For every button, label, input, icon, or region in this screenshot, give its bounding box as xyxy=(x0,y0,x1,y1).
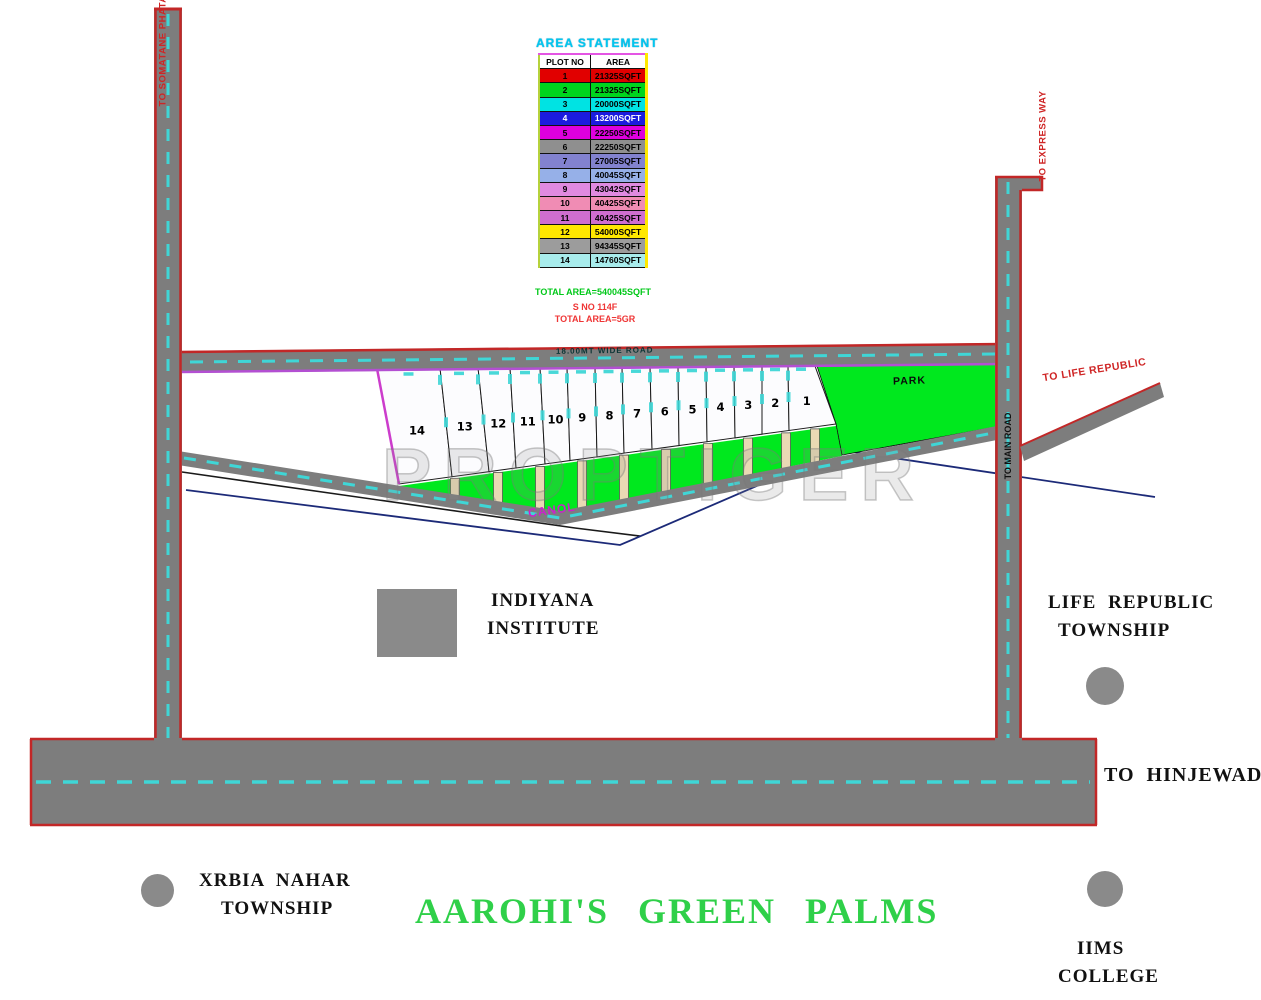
indiyana-label-2: INSTITUTE xyxy=(487,618,600,640)
boundary-dimension-mark xyxy=(620,373,624,383)
plot-no-cell: 1 xyxy=(539,69,591,83)
plot-number-label: 7 xyxy=(633,406,641,420)
plot-no-cell: 3 xyxy=(539,97,591,111)
indiyana-block xyxy=(377,589,457,657)
xrbia-marker xyxy=(141,874,174,907)
area-cell: 40045SQFT xyxy=(591,168,647,182)
road-label-somatane: TO SOMATANE PHATA xyxy=(158,7,169,107)
road-label-expressway: TO EXPRESS WAY xyxy=(1038,92,1049,182)
boundary-dimension-mark xyxy=(594,406,598,416)
boundary-dimension-mark xyxy=(787,392,791,402)
dimension-mark xyxy=(770,368,780,372)
area-row-plot-12: 1254000SQFT xyxy=(539,225,647,239)
plot-no-cell: 7 xyxy=(539,154,591,168)
area-row-plot-13: 1394345SQFT xyxy=(539,239,647,253)
boundary-dimension-mark xyxy=(621,404,625,414)
area-row-plot-5: 522250SQFT xyxy=(539,125,647,139)
dimension-mark xyxy=(715,368,725,372)
area-row-plot-10: 1040425SQFT xyxy=(539,196,647,210)
boundary-dimension-mark xyxy=(476,374,480,384)
boundary-dimension-mark xyxy=(444,417,448,427)
boundary-dimension-mark xyxy=(567,408,571,418)
boundary-dimension-mark xyxy=(760,371,764,381)
area-row-plot-8: 840045SQFT xyxy=(539,168,647,182)
life-republic-road-edge xyxy=(1020,383,1160,446)
area-cell: 21325SQFT xyxy=(591,83,647,97)
area-cell: 43042SQFT xyxy=(591,182,647,196)
plot-number-label: 4 xyxy=(716,400,724,414)
plot-number-label: 5 xyxy=(688,402,696,416)
plot-no-cell: 8 xyxy=(539,168,591,182)
table-col-area: AREA xyxy=(591,54,647,69)
area-row-plot-11: 1140425SQFT xyxy=(539,211,647,225)
plot-number-label: 3 xyxy=(744,398,752,412)
area-row-plot-7: 727005SQFT xyxy=(539,154,647,168)
driveway-strip-5 xyxy=(662,449,671,492)
area-cell: 13200SQFT xyxy=(591,111,647,125)
plot-number-label: 11 xyxy=(520,414,536,428)
area-cell: 20000SQFT xyxy=(591,97,647,111)
area-cell: 40425SQFT xyxy=(591,196,647,210)
dimension-mark xyxy=(659,369,669,373)
boundary-dimension-mark xyxy=(508,374,512,384)
dimension-mark xyxy=(576,370,586,374)
survey-no-line: S NO 114F xyxy=(530,302,660,312)
boundary-dimension-mark xyxy=(649,402,653,412)
plot-no-cell: 11 xyxy=(539,211,591,225)
total-area-line: TOTAL AREA=540045SQFT xyxy=(528,287,658,297)
plot-no-cell: 4 xyxy=(539,111,591,125)
plot-no-cell: 5 xyxy=(539,125,591,139)
boundary-dimension-mark xyxy=(541,410,545,420)
life-republic-label-2: TOWNSHIP xyxy=(1058,620,1170,642)
dimension-mark xyxy=(520,371,530,375)
boundary-dimension-mark xyxy=(732,371,736,381)
iims-label-1: IIMS xyxy=(1077,938,1124,960)
area-row-plot-14: 1414760SQFT xyxy=(539,253,647,267)
dimension-mark xyxy=(796,367,806,371)
plot-no-cell: 14 xyxy=(539,253,591,267)
table-header-row: PLOT NOAREA xyxy=(539,54,647,69)
boundary-dimension-mark xyxy=(482,415,486,425)
area-statement-table: PLOT NOAREA 121325SQFT221325SQFT320000SQ… xyxy=(538,53,648,268)
boundary-dimension-mark xyxy=(538,374,542,384)
area-cell: 22250SQFT xyxy=(591,140,647,154)
boundary-dimension-mark xyxy=(733,396,737,406)
area-row-plot-6: 622250SQFT xyxy=(539,140,647,154)
area-row-plot-3: 320000SQFT xyxy=(539,97,647,111)
site-plan-page: 1413121110987654321 xyxy=(0,0,1261,1000)
iims-label-2: COLLEGE xyxy=(1058,966,1159,988)
area-cell: 21325SQFT xyxy=(591,69,647,83)
boundary-dimension-mark xyxy=(786,371,790,381)
xrbia-label-2: TOWNSHIP xyxy=(221,898,333,920)
dimension-mark xyxy=(549,370,559,374)
life-republic-road xyxy=(1020,383,1164,461)
iims-marker xyxy=(1087,871,1123,907)
dimension-mark xyxy=(631,369,641,373)
life-republic-label-1: LIFE REPUBLIC xyxy=(1048,592,1214,614)
driveway-strip-6 xyxy=(704,444,713,485)
dimension-mark xyxy=(404,372,414,376)
park-label: PARK xyxy=(893,374,926,387)
indiyana-label-1: INDIYANA xyxy=(491,590,594,612)
dimension-mark xyxy=(489,371,499,375)
area-row-plot-2: 221325SQFT xyxy=(539,83,647,97)
boundary-dimension-mark xyxy=(704,372,708,382)
project-title: AAROHI'S GREEN PALMS xyxy=(415,890,938,932)
boundary-dimension-mark xyxy=(760,394,764,404)
dimension-mark xyxy=(687,369,697,373)
road-label-main-road: TO MAIN ROAD xyxy=(1003,401,1013,491)
plot-number-label: 10 xyxy=(547,412,563,426)
area-cell: 14760SQFT xyxy=(591,253,647,267)
driveway-strip-0 xyxy=(451,478,460,496)
dimension-mark xyxy=(454,372,464,376)
hinjewadi-label: TO HINJEWADI xyxy=(1104,764,1261,787)
life-republic-marker xyxy=(1086,667,1124,705)
plot-number-label: 12 xyxy=(490,417,506,431)
plot-no-cell: 10 xyxy=(539,196,591,210)
boundary-dimension-mark xyxy=(511,412,515,422)
driveway-strip-9 xyxy=(811,429,820,463)
plot-no-cell: 6 xyxy=(539,140,591,154)
driveway-strip-7 xyxy=(744,438,753,476)
plot-number-label: 9 xyxy=(578,410,586,424)
boundary-dimension-mark xyxy=(677,400,681,410)
area-statement: AREA STATEMENT PLOT NOAREA 121325SQFT221… xyxy=(536,36,656,268)
plot-number-label: 6 xyxy=(661,404,669,418)
plot-number-label: 13 xyxy=(457,419,473,433)
boundary-dimension-mark xyxy=(648,372,652,382)
road-label-18m-wide: 18.00MT WIDE ROAD xyxy=(556,345,676,356)
area-cell: 40425SQFT xyxy=(591,211,647,225)
plot-no-cell: 13 xyxy=(539,239,591,253)
area-statement-title: AREA STATEMENT xyxy=(536,36,656,50)
driveway-strip-8 xyxy=(782,433,791,469)
table-col-plot-no: PLOT NO xyxy=(539,54,591,69)
driveway-strip-3 xyxy=(578,461,587,509)
survey-area-line: TOTAL AREA=5GR xyxy=(530,314,660,324)
plot-no-cell: 12 xyxy=(539,225,591,239)
boundary-dimension-mark xyxy=(705,398,709,408)
dimension-mark xyxy=(743,368,753,372)
plot-number-label: 8 xyxy=(605,408,613,422)
plot-number-label: 14 xyxy=(409,423,425,437)
area-row-plot-1: 121325SQFT xyxy=(539,69,647,83)
dimension-mark xyxy=(604,370,614,374)
boundary-dimension-mark xyxy=(593,373,597,383)
area-cell: 27005SQFT xyxy=(591,154,647,168)
plot-number-label: 2 xyxy=(771,396,779,410)
boundary-dimension-mark xyxy=(676,372,680,382)
plot-number-label: 1 xyxy=(803,394,811,408)
area-cell: 22250SQFT xyxy=(591,125,647,139)
boundary-dimension-mark xyxy=(565,373,569,383)
area-row-plot-9: 943042SQFT xyxy=(539,182,647,196)
area-row-plot-4: 413200SQFT xyxy=(539,111,647,125)
driveway-strip-4 xyxy=(620,455,629,500)
boundary-dimension-mark xyxy=(438,375,442,385)
area-cell: 94345SQFT xyxy=(591,239,647,253)
area-cell: 54000SQFT xyxy=(591,225,647,239)
xrbia-label-1: XRBIA NAHAR xyxy=(199,870,351,892)
plot-no-cell: 9 xyxy=(539,182,591,196)
driveway-strip-1 xyxy=(494,472,503,503)
plot-no-cell: 2 xyxy=(539,83,591,97)
